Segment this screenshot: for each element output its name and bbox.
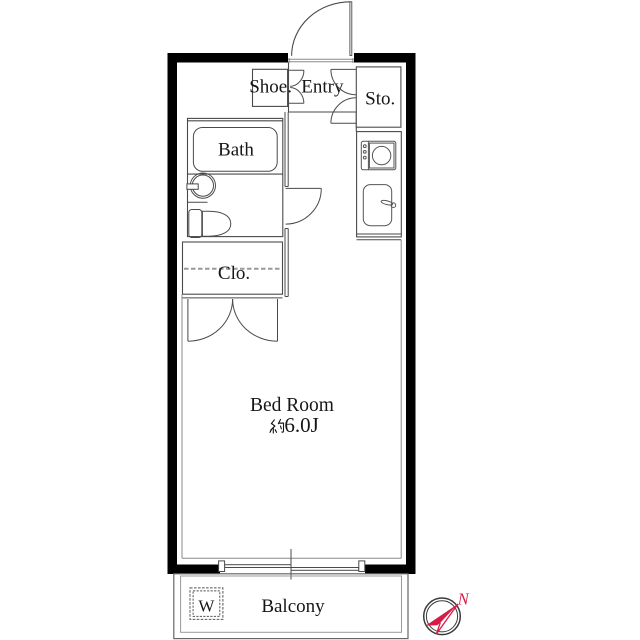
svg-text:N: N: [457, 590, 470, 609]
svg-text:6.0J: 6.0J: [284, 413, 318, 437]
svg-text:Sto.: Sto.: [365, 89, 395, 110]
svg-text:Clo.: Clo.: [218, 263, 250, 284]
svg-text:W: W: [198, 596, 215, 615]
svg-text:Balcony: Balcony: [261, 596, 325, 617]
svg-text:Bath: Bath: [218, 140, 254, 161]
svg-text:Shoe.: Shoe.: [249, 77, 292, 98]
